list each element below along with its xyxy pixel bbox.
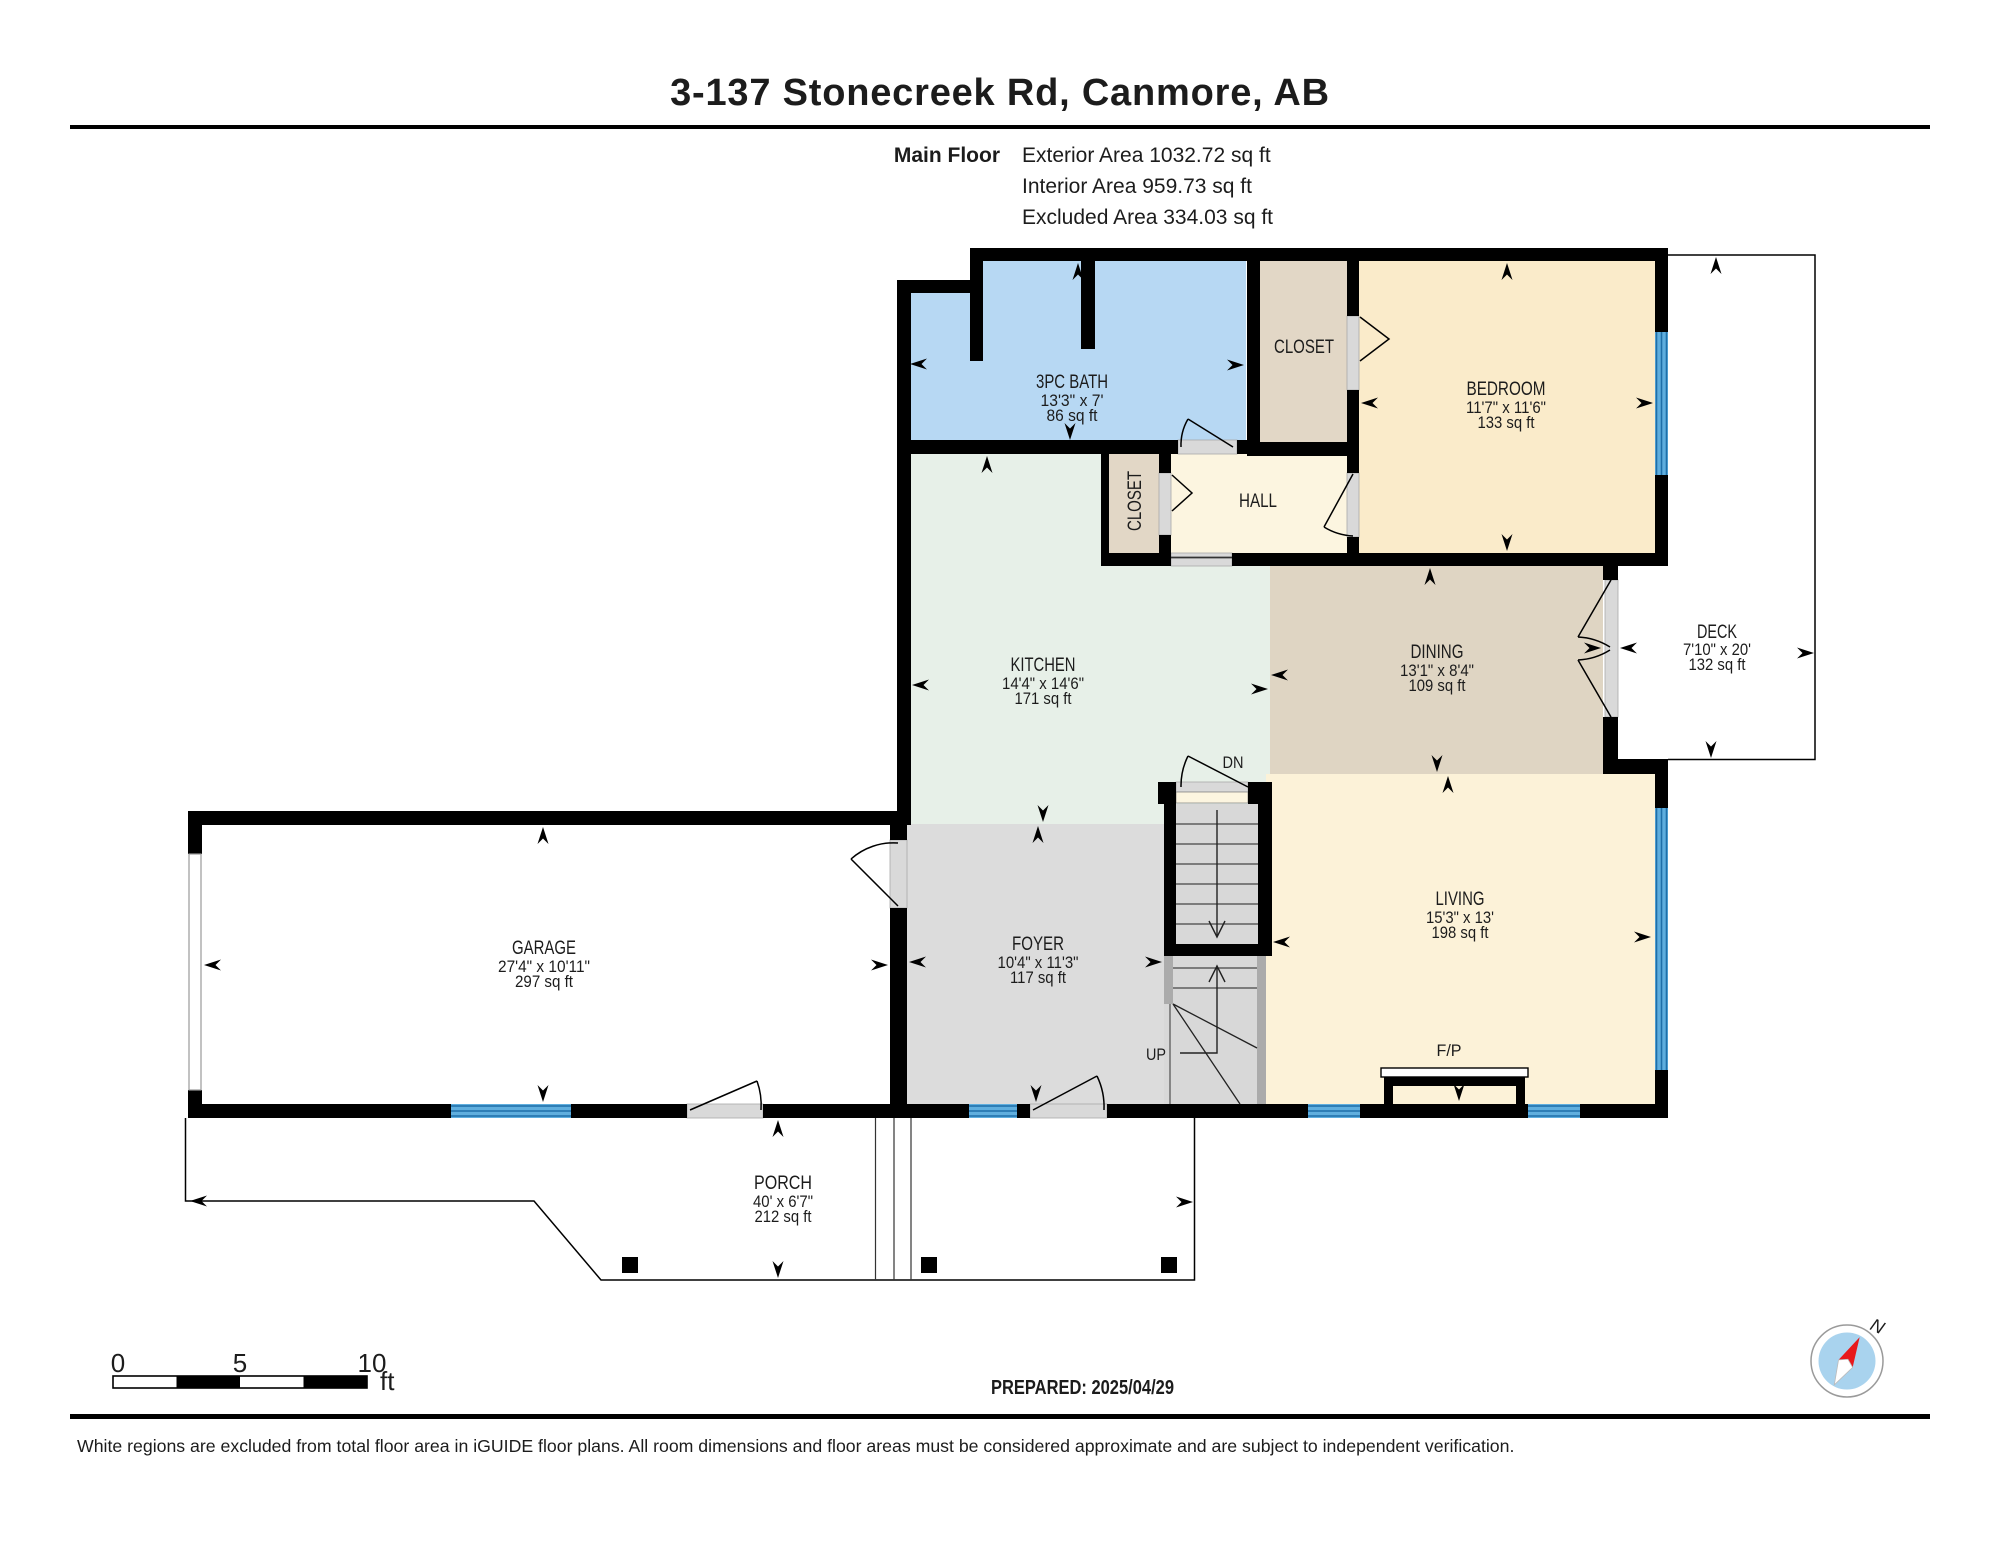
svg-text:HALL: HALL (1239, 491, 1277, 512)
svg-text:Interior Area 959.73 sq ft: Interior Area 959.73 sq ft (1022, 175, 1252, 198)
svg-text:3PC BATH: 3PC BATH (1036, 372, 1108, 393)
svg-text:DN: DN (1223, 753, 1244, 772)
svg-text:0: 0 (111, 1348, 125, 1378)
svg-text:198 sq ft: 198 sq ft (1432, 923, 1489, 942)
svg-text:UP: UP (1146, 1045, 1166, 1064)
svg-text:3-137 Stonecreek Rd, Canmore,: 3-137 Stonecreek Rd, Canmore, AB (670, 72, 1330, 114)
svg-text:Exterior Area 1032.72 sq ft: Exterior Area 1032.72 sq ft (1022, 144, 1271, 167)
svg-text:212 sq ft: 212 sq ft (755, 1207, 812, 1226)
svg-text:Excluded Area 334.03 sq ft: Excluded Area 334.03 sq ft (1022, 206, 1273, 229)
svg-text:86 sq ft: 86 sq ft (1047, 406, 1098, 425)
svg-text:297 sq ft: 297 sq ft (515, 972, 573, 991)
svg-text:CLOSET: CLOSET (1274, 337, 1334, 358)
svg-text:White regions are excluded fro: White regions are excluded from total fl… (77, 1436, 1514, 1456)
svg-text:LIVING: LIVING (1436, 889, 1485, 910)
svg-text:171 sq ft: 171 sq ft (1015, 689, 1072, 708)
svg-text:BEDROOM: BEDROOM (1467, 379, 1546, 400)
svg-text:ft: ft (380, 1366, 395, 1396)
svg-text:F/P: F/P (1437, 1041, 1462, 1060)
svg-text:CLOSET: CLOSET (1125, 471, 1146, 531)
svg-text:132 sq ft: 132 sq ft (1689, 655, 1746, 674)
svg-text:PREPARED: 2025/04/29: PREPARED: 2025/04/29 (991, 1377, 1174, 1399)
svg-text:117 sq ft: 117 sq ft (1010, 968, 1066, 987)
svg-text:DINING: DINING (1411, 642, 1464, 663)
svg-text:5: 5 (233, 1348, 247, 1378)
svg-text:133 sq ft: 133 sq ft (1478, 413, 1535, 432)
svg-text:Main Floor: Main Floor (894, 144, 1000, 167)
svg-text:PORCH: PORCH (754, 1173, 812, 1194)
svg-text:109 sq ft: 109 sq ft (1409, 676, 1466, 695)
svg-text:KITCHEN: KITCHEN (1011, 655, 1076, 676)
svg-text:GARAGE: GARAGE (512, 938, 576, 959)
svg-text:FOYER: FOYER (1012, 934, 1064, 955)
